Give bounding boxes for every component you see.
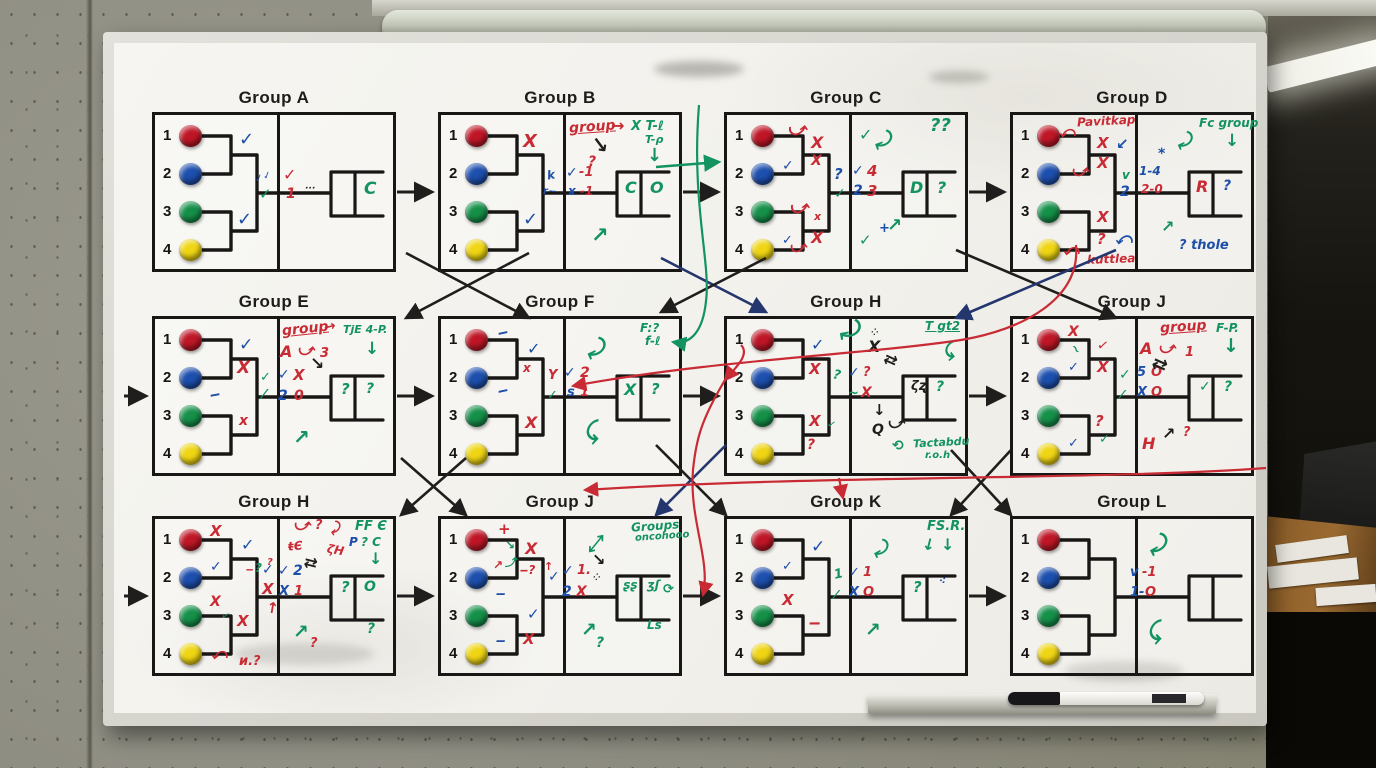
handwritten-annotation: ✓ — [562, 564, 574, 578]
handwritten-annotation: ⤻ — [1071, 163, 1088, 179]
green-magnet[interactable] — [1037, 405, 1060, 427]
magnet-number: 2 — [735, 369, 743, 386]
magnet-number: 1 — [735, 331, 743, 348]
blue-magnet[interactable] — [1037, 163, 1060, 185]
green-magnet-row: 3 — [449, 605, 505, 629]
handwritten-annotation: X T-ℓ — [631, 120, 664, 133]
green-magnet[interactable] — [751, 201, 774, 223]
handwritten-annotation: 2 — [580, 366, 590, 380]
handwritten-annotation: ✓ — [564, 366, 576, 380]
magnet-number: 1 — [449, 531, 457, 548]
handwritten-annotation: ↘ — [505, 539, 515, 551]
handwritten-annotation: ✓ — [1099, 433, 1110, 446]
handwritten-annotation: Fc group — [1199, 117, 1258, 129]
red-magnet-row: 1 — [735, 125, 791, 149]
handwritten-annotation: ‒? — [520, 564, 535, 576]
handwritten-annotation: ? — [1183, 426, 1191, 439]
green-magnet-row: 3 — [163, 405, 219, 429]
handwritten-annotation: x — [523, 362, 531, 374]
green-magnet-row: 3 — [1021, 605, 1077, 629]
handwritten-annotation: ✓ — [523, 211, 538, 229]
handwritten-annotation: ✓ — [834, 187, 846, 201]
green-magnet-row: 3 — [735, 201, 791, 225]
magnet-number: 3 — [1021, 203, 1029, 220]
green-magnet[interactable] — [465, 605, 488, 627]
magnet-number: 3 — [449, 203, 457, 220]
handwritten-annotation: X — [1097, 156, 1109, 171]
handwritten-annotation: ✓ — [260, 371, 271, 384]
handwritten-annotation: ⤺ — [1115, 231, 1132, 247]
handwritten-annotation: X — [782, 593, 794, 608]
blue-magnet[interactable] — [465, 567, 488, 589]
handwritten-annotation: ✓ — [527, 607, 540, 622]
magnet-number: 1 — [735, 127, 743, 144]
handwritten-annotation: X — [525, 541, 537, 557]
handwritten-annotation: ↗ — [293, 427, 310, 447]
handwritten-annotation: ✓ — [782, 560, 793, 573]
group-title: Group H — [152, 492, 396, 512]
red-magnet[interactable] — [465, 125, 488, 147]
handwritten-annotation: A — [280, 344, 292, 360]
magnet-number: 1 — [1021, 531, 1029, 548]
handwritten-annotation: ? — [341, 382, 350, 397]
magnet-number: 3 — [735, 407, 743, 424]
handwritten-annotation: ? — [1097, 232, 1106, 247]
blue-magnet[interactable] — [751, 163, 774, 185]
magnet-number: 2 — [735, 165, 743, 182]
handwritten-annotation: Ls — [647, 619, 662, 631]
whiteboard-marker[interactable] — [1008, 692, 1204, 705]
handwritten-annotation: X — [525, 415, 537, 431]
handwritten-annotation: ‒ — [496, 634, 506, 648]
whiteboard-photo: { "board": { "ink": { "b": "#1d4ea8", "r… — [0, 0, 1376, 768]
blue-magnet-row: 2 — [735, 367, 791, 391]
yellow-magnet[interactable] — [179, 643, 202, 665]
handwritten-annotation: X — [861, 386, 872, 400]
handwritten-annotation: ✓ — [259, 187, 272, 202]
handwritten-annotation: O — [863, 586, 874, 599]
handwritten-annotation: ? — [913, 580, 922, 595]
group-title: Group K — [724, 492, 968, 512]
green-magnet[interactable] — [1037, 201, 1060, 223]
red-magnet[interactable] — [465, 529, 488, 551]
green-magnet-row: 3 — [449, 405, 505, 429]
group-title: Group D — [1010, 88, 1254, 108]
marker-band — [1152, 694, 1186, 703]
handwritten-annotation: ↙ — [1116, 137, 1129, 152]
handwritten-annotation: F-P. — [1216, 322, 1239, 334]
magnet-number: 3 — [449, 607, 457, 624]
green-magnet[interactable] — [465, 201, 488, 223]
handwritten-annotation: ✓ — [283, 167, 296, 183]
magnet-number: 1 — [163, 127, 171, 144]
handwritten-annotation: Y — [548, 369, 557, 382]
handwritten-annotation: ⤺ — [211, 647, 227, 662]
handwritten-annotation: A — [1140, 341, 1152, 357]
green-magnet[interactable] — [179, 405, 202, 427]
blue-magnet[interactable] — [751, 567, 774, 589]
group-box: 1234 ✓X‒x✓✓X⁄20group→A⤻3↘TjE 4-P.↓??↗ — [152, 316, 396, 476]
blue-magnet-row: 2 — [449, 163, 505, 187]
handwritten-annotation: ··· — [305, 185, 315, 194]
red-magnet-row: 1 — [163, 125, 219, 149]
handwritten-annotation: O — [1145, 586, 1156, 599]
handwritten-annotation: ŧЄ — [288, 539, 304, 552]
handwritten-annotation: -1 — [1142, 566, 1156, 579]
magnet-number: 1 — [449, 127, 457, 144]
handwritten-annotation: group — [1160, 318, 1207, 335]
handwritten-annotation: v — [1130, 566, 1138, 579]
magnet-number: 4 — [735, 445, 743, 462]
group-title: Group F — [438, 292, 682, 312]
handwritten-annotation: ? — [366, 382, 374, 396]
group-box: 1234 X✓✓‒??X✓X⤺и.?✓X↑✓2X1⤻?⤸ŧЄζH⇄FF ЄP? … — [152, 516, 396, 676]
handwritten-annotation: 2 — [293, 564, 303, 578]
handwritten-annotation: 1 — [294, 585, 303, 598]
magnet-number: 4 — [163, 241, 171, 258]
handwritten-annotation: ⤺ — [1063, 243, 1079, 258]
handwritten-annotation: ↘ — [310, 356, 324, 373]
handwritten-annotation: r.o.h — [925, 451, 950, 461]
handwritten-annotation: x — [239, 414, 248, 428]
handwritten-annotation: O — [364, 580, 376, 594]
magnet-number: 2 — [1021, 369, 1029, 386]
handwritten-annotation: 2 — [1120, 185, 1130, 199]
blue-magnet[interactable] — [465, 367, 488, 389]
magnet-number: 4 — [1021, 645, 1029, 662]
handwritten-annotation: kuttlea — [1087, 252, 1136, 266]
smudge — [654, 61, 744, 77]
handwritten-annotation: ⁄ — [1121, 389, 1123, 401]
handwritten-annotation: R — [1196, 179, 1208, 195]
handwritten-annotation: X — [1068, 325, 1079, 339]
handwritten-annotation: X — [1137, 386, 1147, 399]
red-magnet[interactable] — [179, 329, 202, 351]
handwritten-annotation: ↓ — [1223, 337, 1239, 356]
handwritten-annotation: ? C — [361, 536, 381, 548]
red-magnet-row: 1 — [449, 125, 505, 149]
handwritten-annotation: X — [523, 133, 537, 151]
handwritten-annotation: FF Є — [355, 520, 387, 533]
handwritten-annotation: ✓ — [859, 233, 872, 248]
yellow-magnet[interactable] — [751, 643, 774, 665]
handwritten-annotation: ⤻ — [887, 415, 904, 431]
green-magnet[interactable] — [751, 605, 774, 627]
handwritten-annotation: ‒ — [246, 564, 254, 575]
handwritten-annotation: ↑ — [265, 600, 280, 617]
handwritten-annotation: 3 — [867, 184, 877, 199]
magnet-number: 3 — [163, 203, 171, 220]
handwritten-annotation: ? — [1224, 380, 1232, 394]
handwritten-annotation: X — [210, 595, 221, 609]
handwritten-annotation: O — [1151, 386, 1162, 399]
red-magnet-row: 1 — [1021, 529, 1077, 553]
handwritten-annotation: ~ — [848, 387, 859, 400]
handwritten-annotation: ↓ — [365, 341, 379, 358]
magnet-number: 4 — [163, 645, 171, 662]
group-panel: Group J 1234 X~✓✓X?✓✓✓⁄5OXOgroupF-P.↓A⤻1… — [1010, 316, 1254, 476]
handwritten-annotation: ⟲ — [892, 439, 904, 453]
handwritten-annotation: ✓ — [239, 131, 254, 149]
handwritten-annotation: и.? — [239, 655, 261, 668]
magnet-number: 4 — [449, 445, 457, 462]
handwritten-annotation: ?? — [930, 117, 951, 135]
red-magnet-row: 1 — [163, 329, 219, 353]
handwritten-annotation: 1. — [577, 564, 591, 577]
group-panel: Group F 1234 ‒✓x‒XY✓✓2s1F:?f-ℓ⤸X?⤹ — [438, 316, 682, 476]
handwritten-annotation: ↗ — [1162, 426, 1175, 442]
magnet-number: 2 — [449, 369, 457, 386]
handwritten-annotation: s — [567, 386, 575, 399]
magnet-number: 2 — [449, 165, 457, 182]
handwritten-annotation: ✓ — [811, 539, 825, 556]
magnet-number: 4 — [1021, 241, 1029, 258]
handwritten-annotation: f-ℓ — [645, 335, 661, 347]
yellow-magnet[interactable] — [179, 239, 202, 261]
group-panel: Group D 1234 Pavitkap⤺XX↙⤻X?⤺kuttleav21-… — [1010, 112, 1254, 272]
handwritten-annotation: oncohooo — [635, 530, 690, 544]
handwritten-annotation: -1 — [580, 185, 593, 197]
handwritten-annotation: ‒ — [496, 587, 506, 601]
handwritten-annotation: ✓ — [1119, 368, 1131, 382]
handwritten-annotation: ⁄ — [263, 389, 265, 402]
group-box: 1234 +↘↗⤴X‒?↑‒✓X‒✓✓1.2X⁘Groupsoncohooo⤢↘… — [438, 516, 682, 676]
magnet-number: 3 — [449, 407, 457, 424]
handwritten-annotation: 2 — [562, 585, 572, 599]
magnet-number: 1 — [1021, 127, 1029, 144]
handwritten-annotation: FS.R. — [927, 520, 965, 533]
magnet-number: 1 — [449, 331, 457, 348]
blue-magnet[interactable] — [1037, 567, 1060, 589]
handwritten-annotation: ⤺ — [1059, 125, 1075, 140]
blue-magnet-row: 2 — [1021, 567, 1077, 591]
handwritten-annotation: ? — [315, 519, 323, 532]
handwritten-annotation: O — [650, 180, 664, 196]
handwritten-annotation: Tactabdu — [913, 436, 970, 450]
handwritten-annotation: v — [1122, 169, 1130, 181]
handwritten-annotation: H — [1142, 436, 1155, 452]
green-magnet[interactable] — [179, 605, 202, 627]
handwritten-annotation: 1-4 — [1139, 165, 1161, 177]
yellow-magnet[interactable] — [1037, 239, 1060, 261]
handwritten-annotation: ✓ — [237, 211, 252, 229]
handwritten-annotation: 2-0 — [1141, 183, 1163, 195]
handwritten-annotation: ⤹ — [1145, 620, 1162, 645]
group-title: Group E — [152, 292, 396, 312]
magnet-number: 3 — [163, 407, 171, 424]
red-magnet[interactable] — [751, 329, 774, 351]
handwritten-annotation: ⤹ — [943, 339, 955, 359]
blue-magnet[interactable] — [179, 567, 202, 589]
handwritten-annotation: ? — [834, 167, 843, 182]
group-title: Group A — [152, 88, 396, 108]
handwritten-annotation: X — [523, 632, 535, 647]
magnet-number: 2 — [163, 369, 171, 386]
handwritten-annotation: F:? — [640, 322, 659, 334]
green-magnet-row: 3 — [1021, 201, 1077, 225]
handwritten-annotation: ⤸ — [331, 521, 339, 535]
handwritten-annotation: X — [279, 585, 289, 598]
handwritten-annotation: ? — [310, 637, 318, 650]
red-magnet[interactable] — [1037, 125, 1060, 147]
handwritten-annotation: X — [1097, 210, 1109, 225]
yellow-magnet-row: 4 — [1021, 643, 1077, 667]
handwritten-annotation: ⤻ — [789, 199, 808, 217]
blue-magnet[interactable] — [179, 367, 202, 389]
group-title: Group C — [724, 88, 968, 108]
yellow-magnet[interactable] — [1037, 643, 1060, 665]
handwritten-annotation: X — [809, 414, 821, 429]
magnet-number: 2 — [1021, 165, 1029, 182]
yellow-magnet[interactable] — [751, 239, 774, 261]
handwritten-annotation: ⤻ — [293, 517, 310, 533]
group-box: 1234 X✓kr~✓-1x-1group→?↘X T-ℓT-ρ↓CO↗ — [438, 112, 682, 272]
handwritten-annotation: ✓ — [1068, 361, 1079, 374]
handwritten-annotation: Q — [872, 423, 884, 437]
group-box: 1234 ✓XX✓??✓?~X⁘X⇄↓QT gt2⤸⤹ζʐ?⤻Tactabdur… — [724, 316, 968, 476]
handwritten-annotation: ↓ — [647, 147, 662, 165]
handwritten-annotation: ✓ — [547, 389, 558, 402]
magnet-number: 4 — [163, 445, 171, 462]
handwritten-annotation: ✓ — [859, 127, 872, 143]
handwritten-annotation: 4 — [867, 164, 877, 179]
magnet-number: 3 — [1021, 407, 1029, 424]
handwritten-annotation: ✓ — [548, 570, 560, 584]
handwritten-annotation: ✓ — [239, 337, 253, 354]
blue-magnet-row: 2 — [163, 163, 219, 187]
magnet-number: 2 — [735, 569, 743, 586]
handwritten-annotation: X — [811, 154, 822, 168]
marker-cap — [1008, 692, 1060, 705]
group-box: 1234 ‒✓x‒XY✓✓2s1F:?f-ℓ⤸X?⤹ — [438, 316, 682, 476]
green-magnet[interactable] — [179, 201, 202, 223]
blue-magnet-row: 2 — [1021, 163, 1077, 187]
handwritten-annotation: r~ — [543, 187, 556, 197]
red-magnet[interactable] — [1037, 529, 1060, 551]
handwritten-annotation: X — [237, 614, 249, 629]
magnet-number: 4 — [449, 645, 457, 662]
red-magnet[interactable] — [465, 329, 488, 351]
handwritten-annotation: D — [910, 180, 923, 196]
yellow-magnet[interactable] — [179, 443, 202, 465]
handwritten-annotation: ⤹ — [582, 420, 599, 445]
magnet-number: 2 — [449, 569, 457, 586]
concrete-seam — [86, 0, 93, 768]
handwritten-annotation: ζʐ — [911, 380, 928, 393]
handwritten-annotation: ✓ — [262, 563, 274, 577]
red-magnet[interactable] — [1037, 329, 1060, 351]
green-magnet[interactable] — [1037, 605, 1060, 627]
blue-magnet[interactable] — [465, 163, 488, 185]
handwritten-annotation: 1 — [863, 566, 872, 579]
group-title: Group B — [438, 88, 682, 108]
red-magnet[interactable] — [751, 125, 774, 147]
handwritten-annotation: T-ρ — [645, 134, 663, 145]
handwritten-annotation: X — [849, 586, 859, 599]
red-magnet[interactable] — [179, 125, 202, 147]
blue-magnet[interactable] — [751, 367, 774, 389]
red-magnet[interactable] — [179, 529, 202, 551]
magnet-number: 4 — [735, 645, 743, 662]
handwritten-annotation: ✓ — [1096, 338, 1110, 354]
handwritten-annotation: 5 — [1137, 366, 1146, 379]
handwritten-annotation: Pavitkap — [1077, 113, 1136, 128]
yellow-magnet[interactable] — [465, 239, 488, 261]
green-magnet-row: 3 — [163, 201, 219, 225]
red-magnet-row: 1 — [449, 329, 505, 353]
yellow-magnet[interactable] — [465, 643, 488, 665]
magnet-number: 4 — [1021, 445, 1029, 462]
blue-magnet[interactable] — [179, 163, 202, 185]
whiteboard-surface: Group A 1234 ✓✓✓✓✓✓1···C Group B 1234 — [114, 43, 1256, 713]
red-magnet[interactable] — [751, 529, 774, 551]
handwritten-annotation: TjE 4-P. — [343, 324, 387, 335]
handwritten-annotation: ? — [596, 636, 604, 650]
handwritten-annotation: → — [611, 118, 624, 134]
handwritten-annotation: ? — [1223, 179, 1231, 193]
magnet-number: 1 — [1021, 331, 1029, 348]
handwritten-annotation: X — [1097, 360, 1109, 375]
handwritten-annotation: ⟳ — [663, 583, 674, 596]
handwritten-annotation: 1- — [1130, 586, 1144, 599]
handwritten-annotation: ⁖ — [939, 577, 946, 587]
group-panel: Group J 1234 +↘↗⤴X‒?↑‒✓X‒✓✓1.2X⁘Groupson… — [438, 516, 682, 676]
yellow-magnet[interactable] — [465, 443, 488, 465]
green-magnet-row: 3 — [735, 405, 791, 429]
yellow-magnet-row: 4 — [735, 643, 791, 667]
handwritten-annotation: X — [1097, 136, 1109, 151]
magnet-number: 3 — [735, 607, 743, 624]
handwritten-annotation: X — [624, 382, 636, 398]
magnet-number: 2 — [163, 165, 171, 182]
handwritten-annotation: ↗ — [591, 225, 609, 246]
group-panel: Group B 1234 X✓kr~✓-1x-1group→?↘X T-ℓT-ρ… — [438, 112, 682, 272]
handwritten-annotation: ↗ — [887, 217, 902, 235]
handwritten-annotation: ✓ — [852, 164, 864, 178]
blue-magnet[interactable] — [1037, 367, 1060, 389]
green-magnet[interactable] — [465, 405, 488, 427]
red-magnet-row: 1 — [735, 329, 791, 353]
group-panel: Group C 1234 ⤻XX✓⤻xX✓⤻?✓✓423✓⤸??D?✓+↗ — [724, 112, 968, 272]
handwritten-annotation: ? — [863, 366, 871, 379]
handwritten-annotation: X — [262, 582, 274, 597]
handwritten-annotation: ↗ — [493, 559, 503, 571]
magnet-number: 3 — [163, 607, 171, 624]
handwritten-annotation: P — [349, 536, 358, 548]
handwritten-annotation: ↓ — [873, 403, 886, 418]
group-box: 1234 ⤻XX✓⤻xX✓⤻?✓✓423✓⤸??D?✓+↗ — [724, 112, 968, 272]
magnet-number: 1 — [163, 331, 171, 348]
group-title: Group L — [1010, 492, 1254, 512]
group-panel: Group H 1234 ✓XX✓??✓?~X⁘X⇄↓QT gt2⤸⤹ζʐ?⤻T… — [724, 316, 968, 476]
handwritten-annotation: ↗ — [1161, 219, 1174, 235]
handwritten-annotation: X — [293, 368, 305, 383]
magnet-number: 2 — [1021, 569, 1029, 586]
handwritten-annotation: ✓ — [278, 368, 290, 382]
handwritten-annotation: ? thole — [1179, 239, 1229, 252]
handwritten-annotation: C — [364, 181, 376, 198]
green-magnet[interactable] — [751, 405, 774, 427]
group-box: 1234 ✓✓X‒1⁄✓1XOFS.R.↓↓⤸?⁖↗ — [724, 516, 968, 676]
handwritten-annotation: 2 — [278, 389, 288, 403]
group-box: 1234 v-11-O⤸⤹ — [1010, 516, 1254, 676]
yellow-magnet[interactable] — [1037, 443, 1060, 465]
handwritten-annotation: x — [568, 185, 576, 197]
handwritten-annotation: ✓ — [849, 566, 860, 579]
yellow-magnet[interactable] — [751, 443, 774, 465]
handwritten-annotation: ↓ — [941, 537, 954, 553]
handwritten-annotation: ? — [367, 622, 375, 636]
